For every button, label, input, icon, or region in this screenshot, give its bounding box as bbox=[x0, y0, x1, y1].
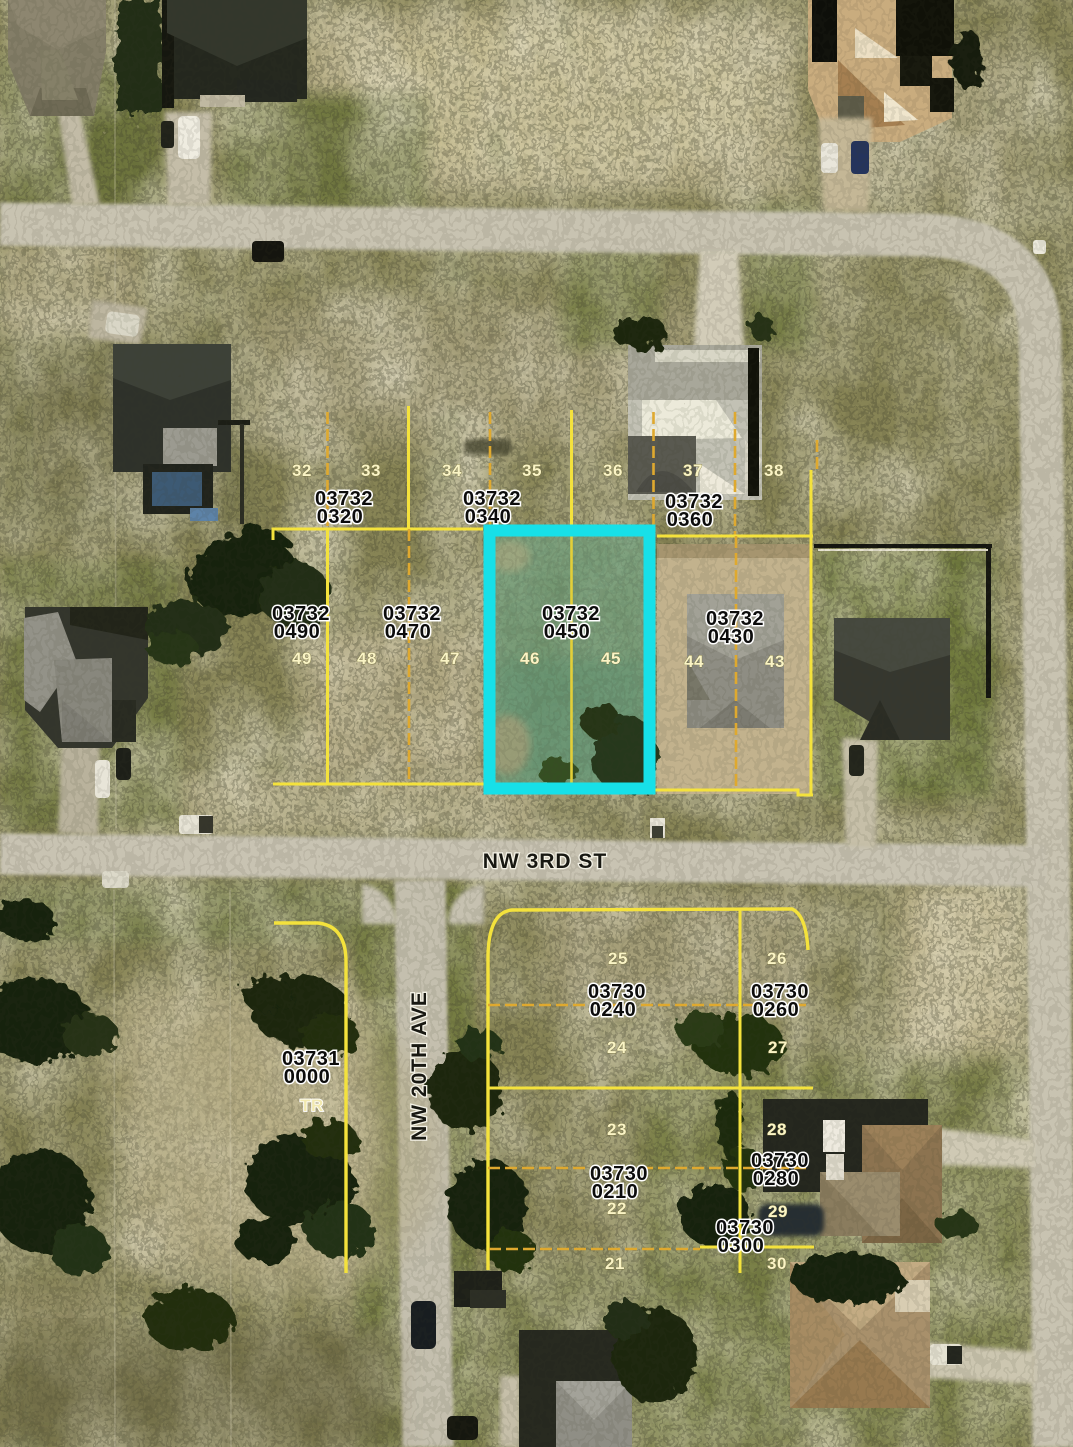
svg-text:32: 32 bbox=[292, 461, 312, 480]
svg-text:34: 34 bbox=[442, 461, 462, 480]
svg-text:23: 23 bbox=[607, 1120, 627, 1139]
svg-text:0320: 0320 bbox=[317, 506, 364, 528]
svg-text:0360: 0360 bbox=[667, 509, 714, 531]
svg-text:44: 44 bbox=[684, 652, 704, 671]
svg-text:49: 49 bbox=[292, 649, 312, 668]
svg-text:30: 30 bbox=[767, 1254, 787, 1273]
svg-text:21: 21 bbox=[605, 1254, 625, 1273]
svg-text:28: 28 bbox=[767, 1120, 787, 1139]
svg-text:38: 38 bbox=[764, 461, 784, 480]
svg-text:NW 3RD ST: NW 3RD ST bbox=[483, 850, 608, 873]
svg-text:45: 45 bbox=[601, 649, 621, 668]
svg-text:0450: 0450 bbox=[544, 621, 591, 643]
svg-text:0430: 0430 bbox=[708, 626, 755, 648]
svg-text:24: 24 bbox=[607, 1038, 627, 1057]
svg-text:22: 22 bbox=[607, 1199, 627, 1218]
svg-text:0260: 0260 bbox=[753, 999, 800, 1021]
svg-text:0300: 0300 bbox=[718, 1235, 765, 1257]
svg-text:48: 48 bbox=[357, 649, 377, 668]
svg-text:0340: 0340 bbox=[465, 506, 512, 528]
svg-text:35: 35 bbox=[522, 461, 542, 480]
svg-text:26: 26 bbox=[767, 949, 787, 968]
svg-text:37: 37 bbox=[683, 461, 703, 480]
svg-text:47: 47 bbox=[440, 649, 460, 668]
svg-text:43: 43 bbox=[765, 652, 785, 671]
svg-text:0000: 0000 bbox=[284, 1066, 331, 1088]
svg-text:0280: 0280 bbox=[753, 1168, 800, 1190]
svg-text:46: 46 bbox=[520, 649, 540, 668]
svg-text:29: 29 bbox=[768, 1202, 788, 1221]
svg-text:27: 27 bbox=[768, 1038, 788, 1057]
svg-text:0490: 0490 bbox=[274, 621, 321, 643]
svg-text:25: 25 bbox=[608, 949, 628, 968]
svg-text:36: 36 bbox=[603, 461, 623, 480]
svg-text:33: 33 bbox=[361, 461, 381, 480]
svg-text:NW 20TH AVE: NW 20TH AVE bbox=[408, 991, 431, 1141]
svg-text:0470: 0470 bbox=[385, 621, 432, 643]
svg-text:0240: 0240 bbox=[590, 999, 637, 1021]
svg-text:TR: TR bbox=[300, 1096, 324, 1115]
